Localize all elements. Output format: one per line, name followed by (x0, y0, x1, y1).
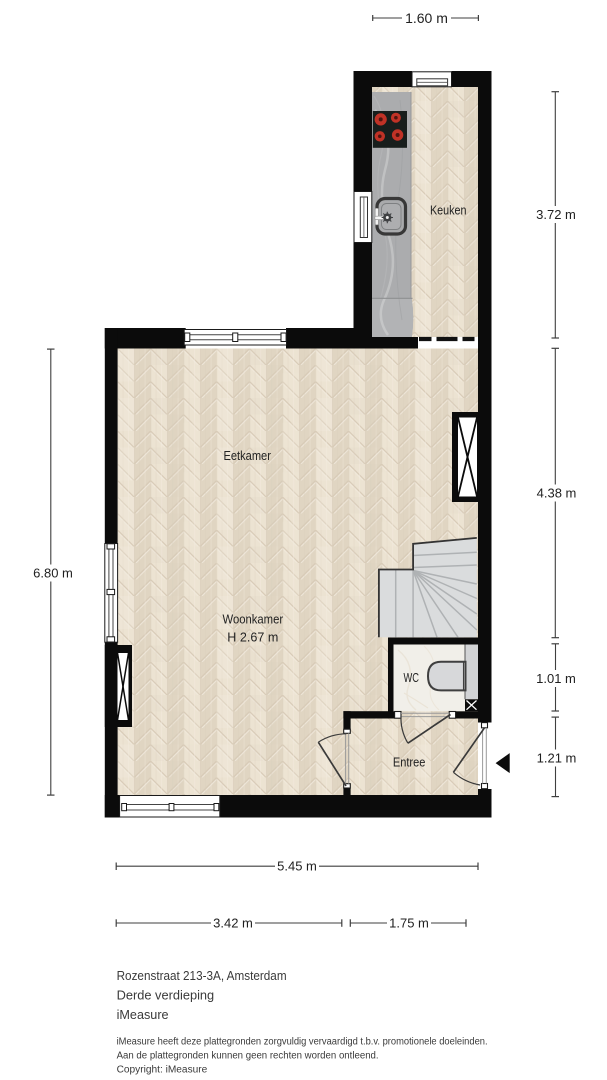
svg-text:Woonkamer: Woonkamer (223, 612, 284, 627)
svg-text:WC: WC (403, 670, 419, 685)
svg-text:1.01 m: 1.01 m (536, 671, 576, 686)
svg-text:3.42 m: 3.42 m (213, 916, 253, 931)
svg-text:iMeasure heeft deze plattegron: iMeasure heeft deze plattegronden zorgvu… (117, 1037, 488, 1048)
svg-text:Entree: Entree (393, 754, 426, 769)
svg-text:3.72 m: 3.72 m (536, 207, 576, 222)
svg-text:Copyright: iMeasure: Copyright: iMeasure (117, 1065, 208, 1076)
svg-text:1.60 m: 1.60 m (405, 10, 448, 26)
svg-text:6.80 m: 6.80 m (33, 566, 73, 581)
svg-text:Rozenstraat 213-3A, Amsterdam: Rozenstraat 213-3A, Amsterdam (117, 969, 287, 983)
svg-text:Aan de plattegronden kunnen ge: Aan de plattegronden kunnen geen rechten… (117, 1051, 379, 1062)
svg-text:Keuken: Keuken (430, 202, 467, 217)
svg-text:Eetkamer: Eetkamer (224, 448, 272, 463)
svg-text:iMeasure: iMeasure (117, 1008, 169, 1022)
svg-text:1.75 m: 1.75 m (389, 916, 429, 931)
svg-text:Derde verdieping: Derde verdieping (117, 989, 215, 1003)
svg-text:4.38 m: 4.38 m (537, 486, 577, 501)
svg-text:H 2.67 m: H 2.67 m (227, 630, 278, 645)
svg-text:1.21 m: 1.21 m (537, 751, 577, 766)
svg-text:5.45 m: 5.45 m (277, 859, 317, 874)
